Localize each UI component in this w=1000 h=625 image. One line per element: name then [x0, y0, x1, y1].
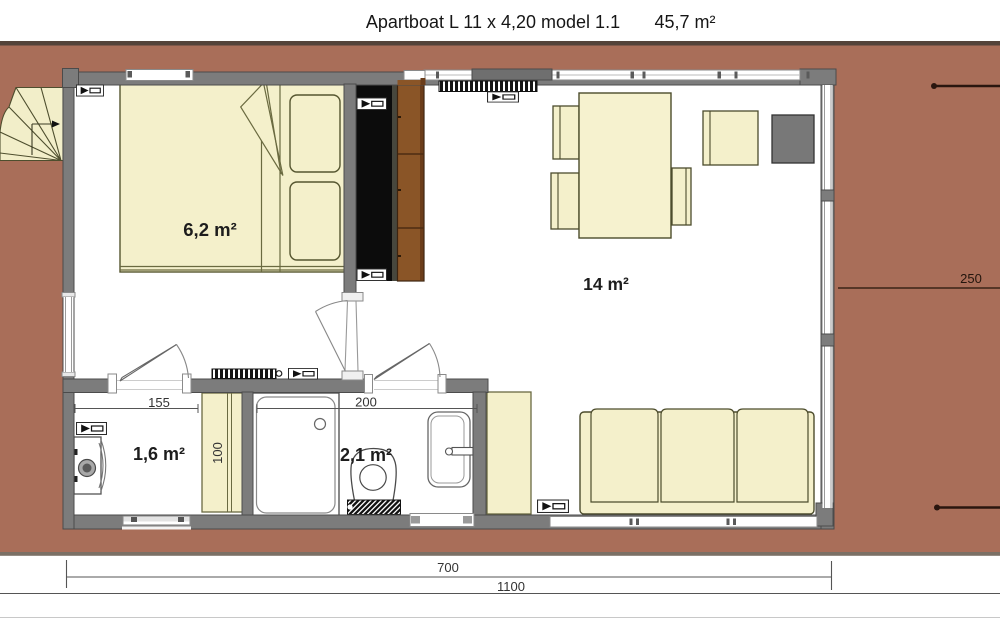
svg-text:155: 155 — [148, 395, 170, 410]
svg-text:250: 250 — [960, 271, 982, 286]
svg-text:1100: 1100 — [497, 579, 525, 594]
svg-text:Apartboat L 11 x 4,20 model 1.: Apartboat L 11 x 4,20 model 1.1 — [366, 12, 620, 32]
svg-text:6,2 m²: 6,2 m² — [183, 219, 236, 240]
svg-text:700: 700 — [437, 560, 459, 575]
svg-text:45,7 m²: 45,7 m² — [654, 12, 715, 32]
svg-text:1,6 m²: 1,6 m² — [133, 444, 185, 464]
svg-text:200: 200 — [355, 395, 377, 410]
svg-text:2,1 m²: 2,1 m² — [340, 445, 392, 465]
svg-text:14 m²: 14 m² — [583, 274, 629, 294]
svg-text:100: 100 — [210, 442, 225, 464]
